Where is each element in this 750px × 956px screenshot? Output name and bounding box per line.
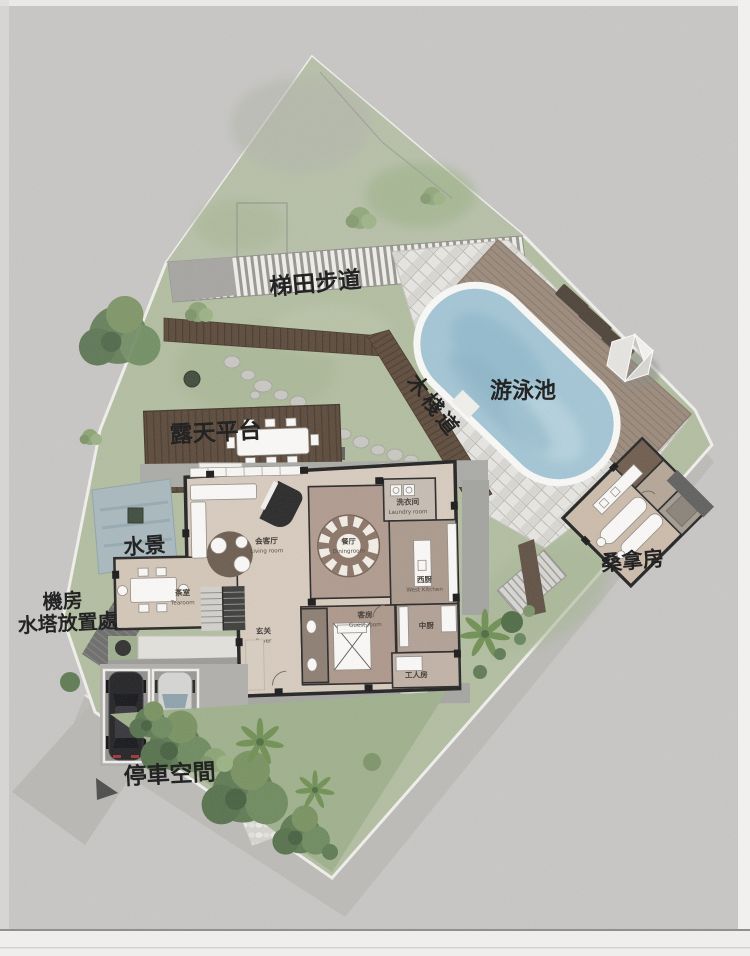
site-plan-image: UP UP UP bbox=[0, 0, 750, 956]
photo-grain bbox=[0, 0, 750, 956]
site-plan-svg: UP UP UP bbox=[0, 0, 750, 956]
